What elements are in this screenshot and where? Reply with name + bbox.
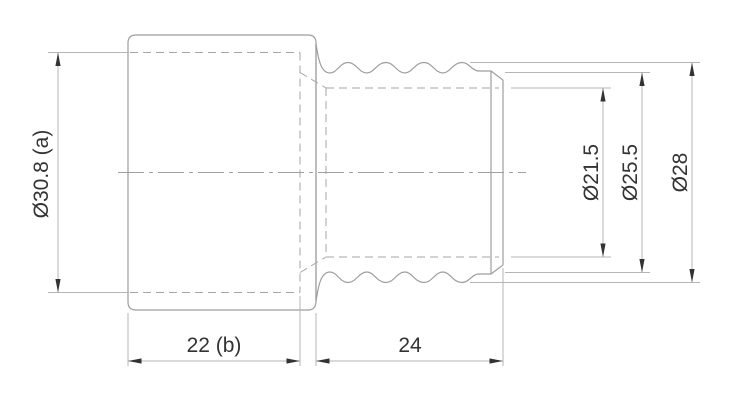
- arrowhead-up: [689, 63, 694, 77]
- technical-drawing: Ø30.8 (a) 22 (b) 24 Ø21.5 Ø25.5: [0, 0, 737, 400]
- arrowhead-up: [639, 73, 644, 87]
- dimension-socket-depth: 22 (b): [128, 296, 300, 366]
- internal-taper-bottom: [300, 257, 326, 273]
- arrowhead-right: [287, 358, 301, 363]
- arrowhead-right: [490, 358, 504, 363]
- drawing-canvas: Ø30.8 (a) 22 (b) 24 Ø21.5 Ø25.5: [0, 0, 737, 400]
- arrowhead-up: [600, 88, 605, 102]
- dim-label-crest-diameter: Ø28: [669, 153, 692, 193]
- internal-taper-top: [300, 73, 326, 89]
- arrowhead-down: [639, 259, 644, 273]
- arrowhead-down: [689, 269, 694, 283]
- dim-label-socket-depth: 22 (b): [187, 334, 242, 357]
- dimension-root-diameter: Ø25.5: [505, 73, 650, 273]
- arrowhead-left: [316, 358, 330, 363]
- arrowhead-up: [55, 53, 60, 67]
- dim-label-socket-bore: Ø30.8 (a): [30, 130, 53, 219]
- dim-label-spigot-length: 24: [398, 334, 422, 357]
- dim-label-bore: Ø21.5: [580, 144, 603, 201]
- arrowhead-left: [128, 358, 142, 363]
- arrowhead-down: [55, 279, 60, 293]
- dimension-socket-bore: Ø30.8 (a): [30, 53, 129, 293]
- arrowhead-down: [600, 244, 605, 258]
- dim-label-root-diameter: Ø25.5: [619, 144, 642, 201]
